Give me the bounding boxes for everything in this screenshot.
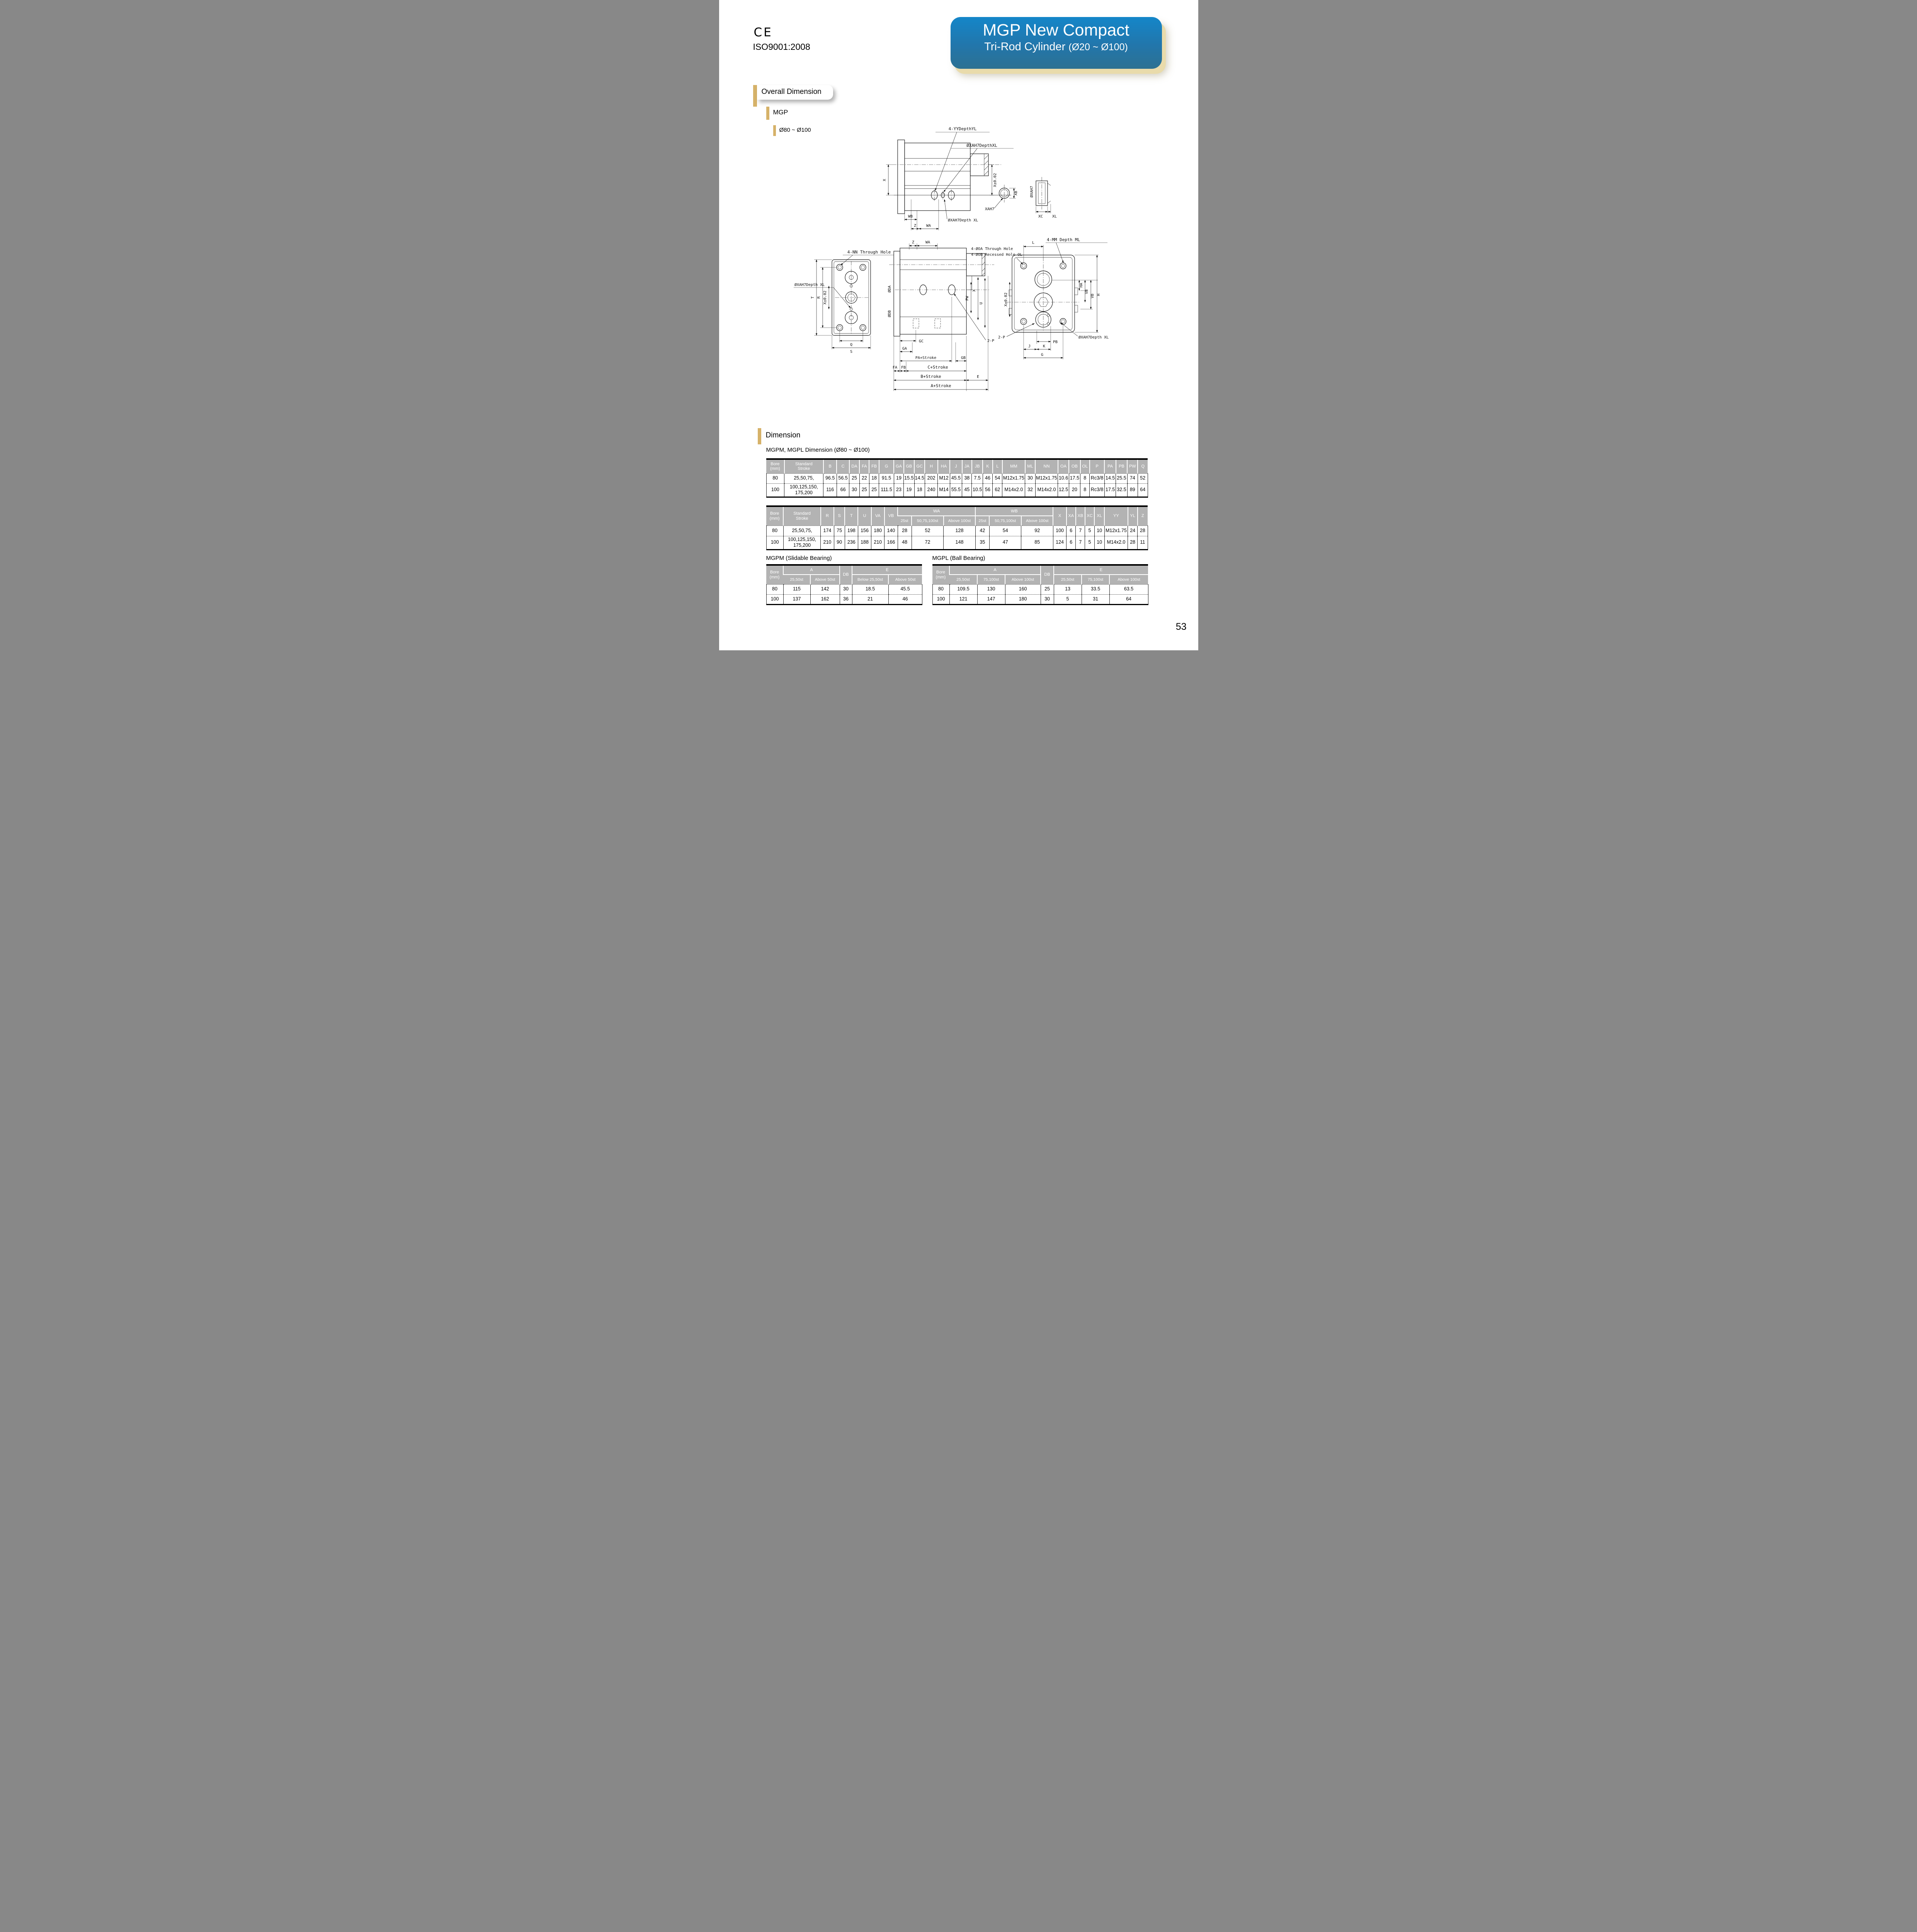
- column-header: XL: [1094, 506, 1104, 526]
- column-header: JA: [962, 459, 972, 473]
- column-header: PA: [1104, 459, 1116, 473]
- table-note: MGPM, MGPL Dimension (Ø80 ~ Ø100): [766, 447, 870, 453]
- cell: 6: [1067, 536, 1076, 549]
- cell: 100: [766, 536, 783, 549]
- cell: 56: [983, 483, 992, 497]
- section-title: Dimension: [761, 428, 801, 440]
- cell: 64: [1109, 594, 1148, 604]
- data-table: Bore (mm)Standard StrokeRSTUVAVBWAWBXXAX…: [766, 505, 1148, 550]
- cell: 46: [983, 473, 992, 483]
- cell: 45.5: [888, 584, 922, 594]
- dim-label-x-tol: X±0.02: [823, 291, 827, 304]
- cell: 100: [932, 594, 949, 604]
- data-table: Bore (mm)Standard StrokeBCDAFAFBGGAGBGCH…: [766, 458, 1148, 498]
- cell: 28: [1128, 536, 1138, 549]
- cell: 62: [993, 483, 1002, 497]
- column-header: 25st: [898, 516, 912, 526]
- cell: 130: [977, 584, 1005, 594]
- cell: 80: [766, 526, 783, 536]
- column-header: VA: [871, 506, 885, 526]
- cell: 19: [904, 483, 914, 497]
- column-header: OB: [1069, 459, 1080, 473]
- mgpm-table-title: MGPM (Slidable Bearing): [766, 555, 832, 561]
- cell: 63.5: [1109, 584, 1148, 594]
- front-view-left: T R X±0.02 4-NN Through Hole Q S ØXAH7De…: [794, 250, 894, 354]
- column-header: DB: [840, 565, 852, 584]
- cell: M12x1.75: [1104, 526, 1128, 536]
- cell: 92: [1021, 526, 1053, 536]
- column-header: Above 100st: [1021, 516, 1053, 526]
- column-header: Q: [1138, 459, 1148, 473]
- table-row: 8025,50,75,96.556.525221891.51915.514.52…: [766, 473, 1148, 483]
- cell: 47: [989, 536, 1021, 549]
- cell: 8: [1080, 473, 1090, 483]
- dim-label-oxa-left: ØXAH7Depth XL: [794, 282, 825, 287]
- column-header: XA: [1067, 506, 1076, 526]
- cell: 19: [894, 473, 903, 483]
- cell: 202: [925, 473, 937, 483]
- cell: 96.5: [823, 473, 837, 483]
- dim-label-c: C+Stroke: [927, 365, 948, 370]
- dim-label-x-tol: X±0.02: [993, 173, 997, 187]
- dim-label-j: J: [1028, 344, 1030, 349]
- table-row: 1001211471803053164: [932, 594, 1148, 604]
- cell: 42: [975, 526, 989, 536]
- dim-label-z: Z: [912, 240, 914, 245]
- dim-label-ga: GA: [902, 347, 907, 351]
- dim-label-vb: VB: [1085, 289, 1089, 294]
- cell: Rc3/8: [1090, 473, 1105, 483]
- cell: 236: [845, 536, 858, 549]
- dim-label-yy: 4-YYDepthYL: [948, 126, 976, 131]
- dim-label-q: Q: [850, 343, 852, 347]
- cell: 6: [1067, 526, 1076, 536]
- column-header: GA: [894, 459, 903, 473]
- dim-label-2p: 2-P: [987, 339, 994, 343]
- cell: 188: [858, 536, 871, 549]
- dim-label-x-tol: X±0.02: [1004, 293, 1008, 306]
- dim-label-pa: PA+Stroke: [915, 356, 936, 360]
- cell: 18: [869, 473, 879, 483]
- cell: 52: [912, 526, 944, 536]
- cell: 174: [821, 526, 834, 536]
- column-header: 25,50st: [949, 575, 977, 584]
- cell: 116: [823, 483, 837, 497]
- product-subtitle-text: Tri-Rod Cylinder: [984, 41, 1065, 53]
- cell: 100,125,150, 175,200: [784, 483, 823, 497]
- cell: 85: [1021, 536, 1053, 549]
- column-header: XC: [1085, 506, 1094, 526]
- column-header: FB: [869, 459, 879, 473]
- mgpl-bearing-table: Bore (mm)ADBE25,50st75,100stAbove 100st2…: [932, 564, 1148, 605]
- section-mgp: MGP: [766, 107, 788, 120]
- cell: 14.5: [914, 473, 925, 483]
- cell: 14.5: [1104, 473, 1116, 483]
- cell: 111.5: [879, 483, 894, 497]
- cell: 10: [1094, 536, 1104, 549]
- column-header: Above 50st: [888, 575, 922, 584]
- section-title: MGP: [769, 107, 788, 116]
- dim-label-oxa-mid: ØXAH7Depth XL: [948, 218, 978, 223]
- column-header: Bore (mm): [766, 506, 783, 526]
- cell: 23: [894, 483, 903, 497]
- column-header: K: [983, 459, 992, 473]
- cell: 180: [1005, 594, 1041, 604]
- cell: 21: [852, 594, 888, 604]
- cell: M12x1.75: [1035, 473, 1058, 483]
- dim-label-vb2: VB: [1090, 294, 1095, 298]
- cell: 25,50,75,: [784, 473, 823, 483]
- column-header: GB: [904, 459, 914, 473]
- cell: 140: [885, 526, 898, 536]
- dim-label-fb: FB: [901, 366, 905, 370]
- side-view-bottom: Z WA 4-ØOA Through Hole 4-ØOB Recessed H…: [887, 240, 1023, 391]
- page-number: 53: [1156, 621, 1187, 633]
- cell: 137: [783, 594, 810, 604]
- dim-label-xa: XAH7: [985, 207, 994, 211]
- dim-label-g: G: [1041, 353, 1043, 357]
- column-header: Standard Stroke: [783, 506, 821, 526]
- cell: 89: [1127, 483, 1138, 497]
- cell: 18.5: [852, 584, 888, 594]
- cell: 22: [859, 473, 869, 483]
- cell: Rc3/8: [1090, 483, 1105, 497]
- column-header: GC: [914, 459, 925, 473]
- table-row: 100137162362146: [766, 594, 922, 604]
- cell: 148: [944, 536, 976, 549]
- bore-range: (Ø20 ~ Ø100): [1068, 42, 1128, 53]
- column-header: B: [823, 459, 837, 473]
- column-header: 75,100st: [977, 575, 1005, 584]
- column-header: H: [925, 459, 937, 473]
- cell: 48: [898, 536, 912, 549]
- product-banner: MGP New Compact Tri-Rod Cylinder (Ø20 ~ …: [951, 17, 1162, 69]
- column-header: 25st: [975, 516, 989, 526]
- cell: 7: [1076, 526, 1085, 536]
- cell: 180: [871, 526, 885, 536]
- cell: 38: [962, 473, 972, 483]
- cell: 100: [1053, 526, 1066, 536]
- cell: 13: [1054, 584, 1082, 594]
- column-header: 50,75,100st: [912, 516, 944, 526]
- cell: 45: [962, 483, 972, 497]
- catalog-page: CE ISO9001:2008 MGP New Compact Tri-Rod …: [719, 0, 1198, 650]
- column-header: C: [837, 459, 849, 473]
- dim-label-t: T: [811, 296, 815, 299]
- dim-label-oxa-right: ØXAH7Depth XL: [1078, 335, 1109, 340]
- cell: 10.5: [972, 483, 983, 497]
- cell: 100: [766, 483, 784, 497]
- cell: 156: [858, 526, 871, 536]
- cell: 25,50,75,: [783, 526, 821, 536]
- column-header: WB: [975, 506, 1053, 516]
- cell: 54: [993, 473, 1002, 483]
- cell: 28: [1138, 526, 1148, 536]
- dim-label-k: K: [1043, 344, 1045, 349]
- cell: 25: [849, 473, 859, 483]
- column-header: E: [1054, 565, 1148, 575]
- cell: 162: [810, 594, 840, 604]
- dim-label-pb: PB: [1053, 340, 1058, 344]
- cell: 33.5: [1082, 584, 1109, 594]
- gold-accent-bar: [753, 85, 757, 107]
- cell: 36: [840, 594, 852, 604]
- column-header: T: [845, 506, 858, 526]
- section-dimension: Dimension: [758, 428, 801, 444]
- dim-label-a: A+Stroke: [930, 383, 951, 388]
- dim-label-e: E: [976, 375, 979, 379]
- dim-label-oob: 4-ØOB Recessed Hole OL: [971, 252, 1022, 257]
- column-header: ML: [1025, 459, 1035, 473]
- cell: 30: [1025, 473, 1035, 483]
- mgpm-bearing-table: Bore (mm)ADBE25,50stAbove 50stBelow 25,5…: [766, 564, 922, 605]
- cell: 7.5: [972, 473, 983, 483]
- gold-accent-bar: [766, 107, 769, 120]
- dim-label-oda: ØDA: [887, 286, 892, 293]
- dim-label-gb: GB: [961, 356, 965, 360]
- column-header: Above 100st: [1005, 575, 1041, 584]
- cell: 147: [977, 594, 1005, 604]
- column-header: S: [834, 506, 845, 526]
- dim-label-h: H: [1097, 294, 1101, 296]
- cell: 100: [766, 594, 783, 604]
- cell: M14x2.0: [1035, 483, 1058, 497]
- dim-label-wa: WA: [926, 224, 930, 228]
- iso-certification: ISO9001:2008: [753, 42, 810, 52]
- mgpl-table-title: MGPL (Ball Bearing): [932, 555, 985, 561]
- section-overall-dimension: Overall Dimension: [753, 85, 833, 107]
- column-header: OL: [1080, 459, 1090, 473]
- cell: 17.5: [1104, 483, 1116, 497]
- column-header: JB: [972, 459, 983, 473]
- cell: 109.5: [949, 584, 977, 594]
- cell: 25: [869, 483, 879, 497]
- cell: 66: [837, 483, 849, 497]
- column-header: YY: [1104, 506, 1128, 526]
- column-header: 75,100st: [1082, 575, 1109, 584]
- dim-label-xl: XL: [1052, 214, 1056, 219]
- cell: 64: [1138, 483, 1148, 497]
- cell: M12: [938, 473, 950, 483]
- column-header: YL: [1128, 506, 1138, 526]
- top-side-view: 4-YYDepthYL ØXAH7DepthXL X X±0.02 WB Z W…: [883, 126, 1014, 230]
- cell: M14: [938, 483, 950, 497]
- dim-label-xc: XC: [1038, 214, 1043, 219]
- dim-label-gc: GC: [919, 339, 924, 344]
- technical-drawing: 4-YYDepthYL ØXAH7DepthXL X X±0.02 WB Z W…: [719, 124, 1198, 394]
- cell: 45.5: [950, 473, 962, 483]
- column-header: X: [1053, 506, 1066, 526]
- cell: 30: [849, 483, 859, 497]
- dim-label-b: B+Stroke: [920, 374, 941, 379]
- dim-label-nn: 4-NN Through Hole: [847, 250, 891, 255]
- column-header: DA: [849, 459, 859, 473]
- column-header: DB: [1041, 565, 1054, 584]
- cell: 5: [1085, 526, 1094, 536]
- cell: 210: [871, 536, 885, 549]
- cell: 7: [1076, 536, 1085, 549]
- cell: 74: [1127, 473, 1138, 483]
- cell: 30: [1041, 594, 1054, 604]
- cell: 12.5: [1058, 483, 1069, 497]
- column-header: MM: [1002, 459, 1025, 473]
- cell: 75: [834, 526, 845, 536]
- column-header: WA: [898, 506, 975, 516]
- column-header: U: [858, 506, 871, 526]
- column-header: Above 100st: [944, 516, 976, 526]
- column-header: OA: [1058, 459, 1069, 473]
- column-header: 50,75,100st: [989, 516, 1021, 526]
- column-header: Bore (mm): [932, 565, 949, 584]
- column-header: Above 100st: [1109, 575, 1148, 584]
- product-subtitle: Tri-Rod Cylinder (Ø20 ~ Ø100): [951, 41, 1162, 53]
- cell: 240: [925, 483, 937, 497]
- column-header: G: [879, 459, 894, 473]
- column-header: P: [1090, 459, 1105, 473]
- table-row: 100100,125,150, 175,20021090236188210166…: [766, 536, 1148, 549]
- column-header: NN: [1035, 459, 1058, 473]
- cell: 20: [1069, 483, 1080, 497]
- column-header: Bore (mm): [766, 459, 784, 473]
- cell: 80: [766, 473, 784, 483]
- dim-label-ha: HA: [1079, 283, 1084, 287]
- dim-label-2p: 2-P: [998, 335, 1005, 340]
- column-header: Below 25,50st: [852, 575, 888, 584]
- cell: 30: [840, 584, 852, 594]
- cell: 128: [944, 526, 976, 536]
- table-row: 100100,125,150, 175,20011666302525111.52…: [766, 483, 1148, 497]
- cell: 8: [1080, 483, 1090, 497]
- cell: 11: [1138, 536, 1148, 549]
- cell: 25: [1041, 584, 1054, 594]
- gold-accent-bar: [758, 428, 761, 444]
- cell: 80: [932, 584, 949, 594]
- cell: 28: [898, 526, 912, 536]
- dim-label-x: X: [883, 179, 887, 181]
- column-header: PW: [1127, 459, 1138, 473]
- cell: 54: [989, 526, 1021, 536]
- cell: 5: [1085, 536, 1094, 549]
- cell: 80: [766, 584, 783, 594]
- cell: 124: [1053, 536, 1066, 549]
- cell: 10.6: [1058, 473, 1069, 483]
- cell: 25: [859, 483, 869, 497]
- column-header: 25,50st: [783, 575, 810, 584]
- cell: M14x2.0: [1002, 483, 1025, 497]
- dim-label-odb: ØDB: [887, 310, 892, 317]
- cell: 160: [1005, 584, 1041, 594]
- dim-label-wb: WB: [908, 214, 912, 219]
- dim-label-pw: PW: [965, 296, 970, 301]
- cell: 25.5: [1116, 473, 1127, 483]
- column-header: HA: [938, 459, 950, 473]
- column-header: Above 50st: [810, 575, 840, 584]
- dimension-table-main: Bore (mm)Standard StrokeBCDAFAFBGGAGBGCH…: [766, 458, 1148, 498]
- cell: 24: [1128, 526, 1138, 536]
- dim-label-mm: 4-MM Depth ML: [1047, 237, 1080, 242]
- cell: 10: [1094, 526, 1104, 536]
- data-table: Bore (mm)ADBE25,50st75,100stAbove 100st2…: [932, 564, 1148, 605]
- dim-label-x: X: [972, 289, 976, 292]
- cell: 91.5: [879, 473, 894, 483]
- cell: 15.5: [904, 473, 914, 483]
- cell: M14x2.0: [1104, 536, 1128, 549]
- cell: 72: [912, 536, 944, 549]
- dim-label-ooa: 4-ØOA Through Hole: [971, 247, 1013, 251]
- table-row: 801151423018.545.5: [766, 584, 922, 594]
- cell: M12x1.75: [1002, 473, 1025, 483]
- column-header: XB: [1076, 506, 1085, 526]
- column-header: PB: [1116, 459, 1127, 473]
- dim-label-xb: XB: [1014, 191, 1018, 196]
- cell: 100,125,150, 175,200: [783, 536, 821, 549]
- cell: 142: [810, 584, 840, 594]
- cell: 55.5: [950, 483, 962, 497]
- cell: 166: [885, 536, 898, 549]
- section-title: Overall Dimension: [757, 85, 833, 100]
- column-header: FA: [859, 459, 869, 473]
- column-header: J: [950, 459, 962, 473]
- column-header: R: [821, 506, 834, 526]
- dim-label-oxa-top: ØXAH7DepthXL: [966, 143, 997, 148]
- data-table: Bore (mm)ADBE25,50stAbove 50stBelow 25,5…: [766, 564, 922, 605]
- cell: 17.5: [1069, 473, 1080, 483]
- cell: 35: [975, 536, 989, 549]
- cell: 210: [821, 536, 834, 549]
- product-title: MGP New Compact: [951, 21, 1162, 40]
- cell: 121: [949, 594, 977, 604]
- cell: 32: [1025, 483, 1035, 497]
- cell: 5: [1054, 594, 1082, 604]
- dim-label-r: R: [817, 296, 821, 299]
- column-header: VB: [885, 506, 898, 526]
- column-header: Bore (mm): [766, 565, 783, 584]
- dim-label-wa: WA: [925, 240, 930, 245]
- ce-mark: CE: [754, 26, 773, 39]
- dim-label-z: Z: [913, 224, 916, 228]
- table-row: 8025,50,75,17475198156180140285212842549…: [766, 526, 1148, 536]
- column-header: Standard Stroke: [784, 459, 823, 473]
- dim-label-oxa-sec: ØXAH7: [1029, 186, 1034, 197]
- dim-label-fa: FA: [892, 366, 897, 370]
- column-header: A: [949, 565, 1041, 575]
- cell: 31: [1082, 594, 1109, 604]
- cell: 46: [888, 594, 922, 604]
- cell: 198: [845, 526, 858, 536]
- cell: 32.5: [1116, 483, 1127, 497]
- column-header: Z: [1138, 506, 1148, 526]
- column-header: L: [993, 459, 1002, 473]
- cell: 52: [1138, 473, 1148, 483]
- column-header: E: [852, 565, 922, 575]
- column-header: A: [783, 565, 840, 575]
- dim-label-u: U: [979, 302, 983, 304]
- cell: 18: [914, 483, 925, 497]
- cell: 90: [834, 536, 845, 549]
- dim-label-s: S: [850, 350, 852, 354]
- cell: 56.5: [837, 473, 849, 483]
- cell: 115: [783, 584, 810, 594]
- column-header: 25,50st: [1054, 575, 1082, 584]
- dimension-table-stroke: Bore (mm)Standard StrokeRSTUVAVBWAWBXXAX…: [766, 505, 1148, 550]
- dim-label-l: L: [1032, 241, 1034, 245]
- table-row: 80109.5130160251333.563.5: [932, 584, 1148, 594]
